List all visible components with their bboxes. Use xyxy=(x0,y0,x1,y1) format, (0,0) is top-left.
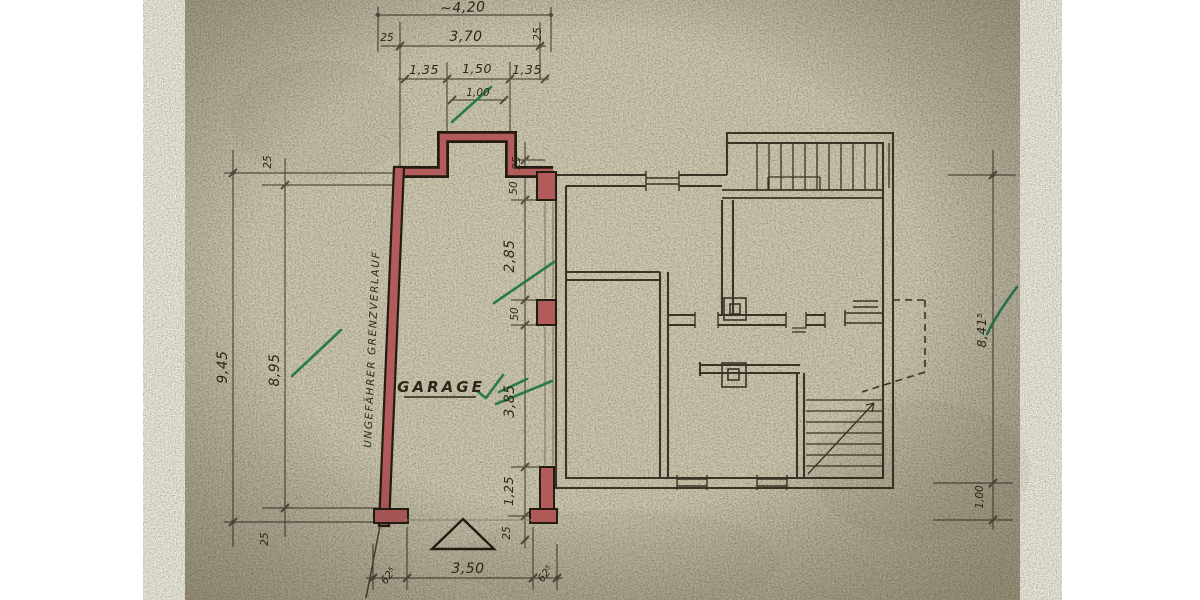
scanned-plan-page: ~4,20 25 3,70 25 1,35 1,50 1,35 1,00 9,4… xyxy=(0,0,1200,600)
floor-plan-drawing: ~4,20 25 3,70 25 1,35 1,50 1,35 1,00 9,4… xyxy=(0,0,1200,600)
scan-vignette xyxy=(185,0,1020,600)
